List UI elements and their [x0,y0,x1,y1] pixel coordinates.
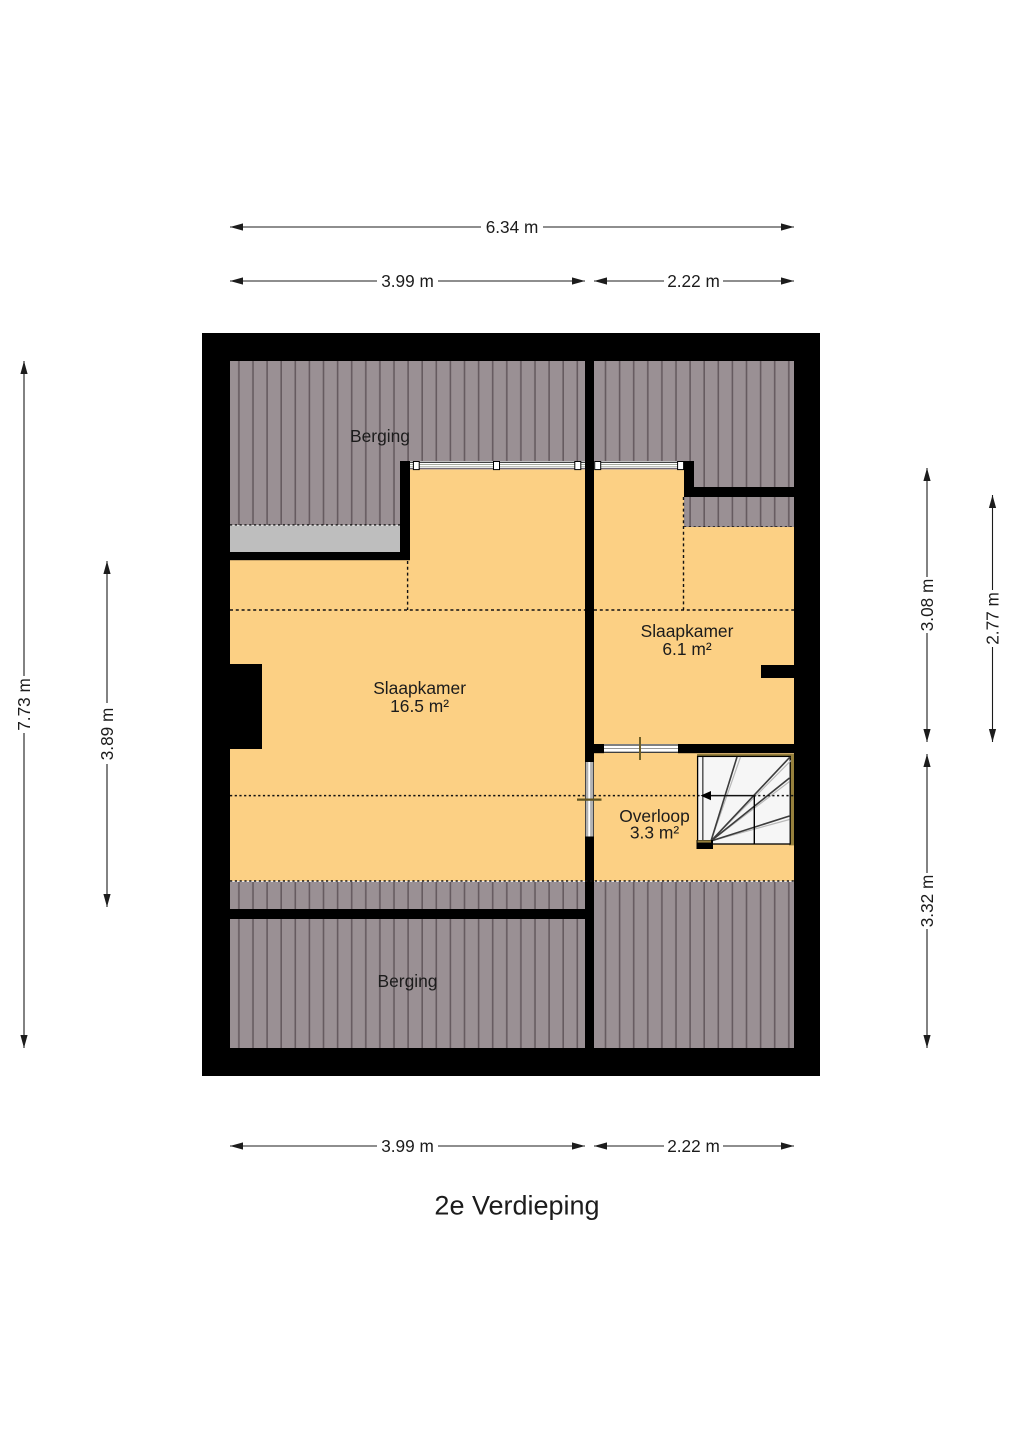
svg-text:7.73 m: 7.73 m [14,678,34,731]
svg-text:3.89 m: 3.89 m [97,708,117,761]
svg-text:3.32 m: 3.32 m [917,875,937,928]
svg-text:2.77 m: 2.77 m [983,592,1003,645]
svg-text:3.99 m: 3.99 m [381,1136,434,1156]
svg-text:Berging: Berging [350,426,410,446]
svg-text:3.99 m: 3.99 m [381,271,434,291]
svg-text:2.22 m: 2.22 m [667,271,720,291]
svg-text:3.08 m: 3.08 m [917,579,937,632]
svg-text:Berging: Berging [378,971,438,991]
svg-text:6.34 m: 6.34 m [486,217,539,237]
svg-text:2e Verdieping: 2e Verdieping [434,1191,599,1221]
svg-text:2.22 m: 2.22 m [667,1136,720,1156]
svg-text:16.5 m²: 16.5 m² [390,696,449,716]
svg-text:3.3 m²: 3.3 m² [630,823,679,843]
svg-text:Slaapkamer: Slaapkamer [373,678,466,698]
svg-text:6.1 m²: 6.1 m² [662,639,711,659]
svg-text:Slaapkamer: Slaapkamer [641,621,734,641]
